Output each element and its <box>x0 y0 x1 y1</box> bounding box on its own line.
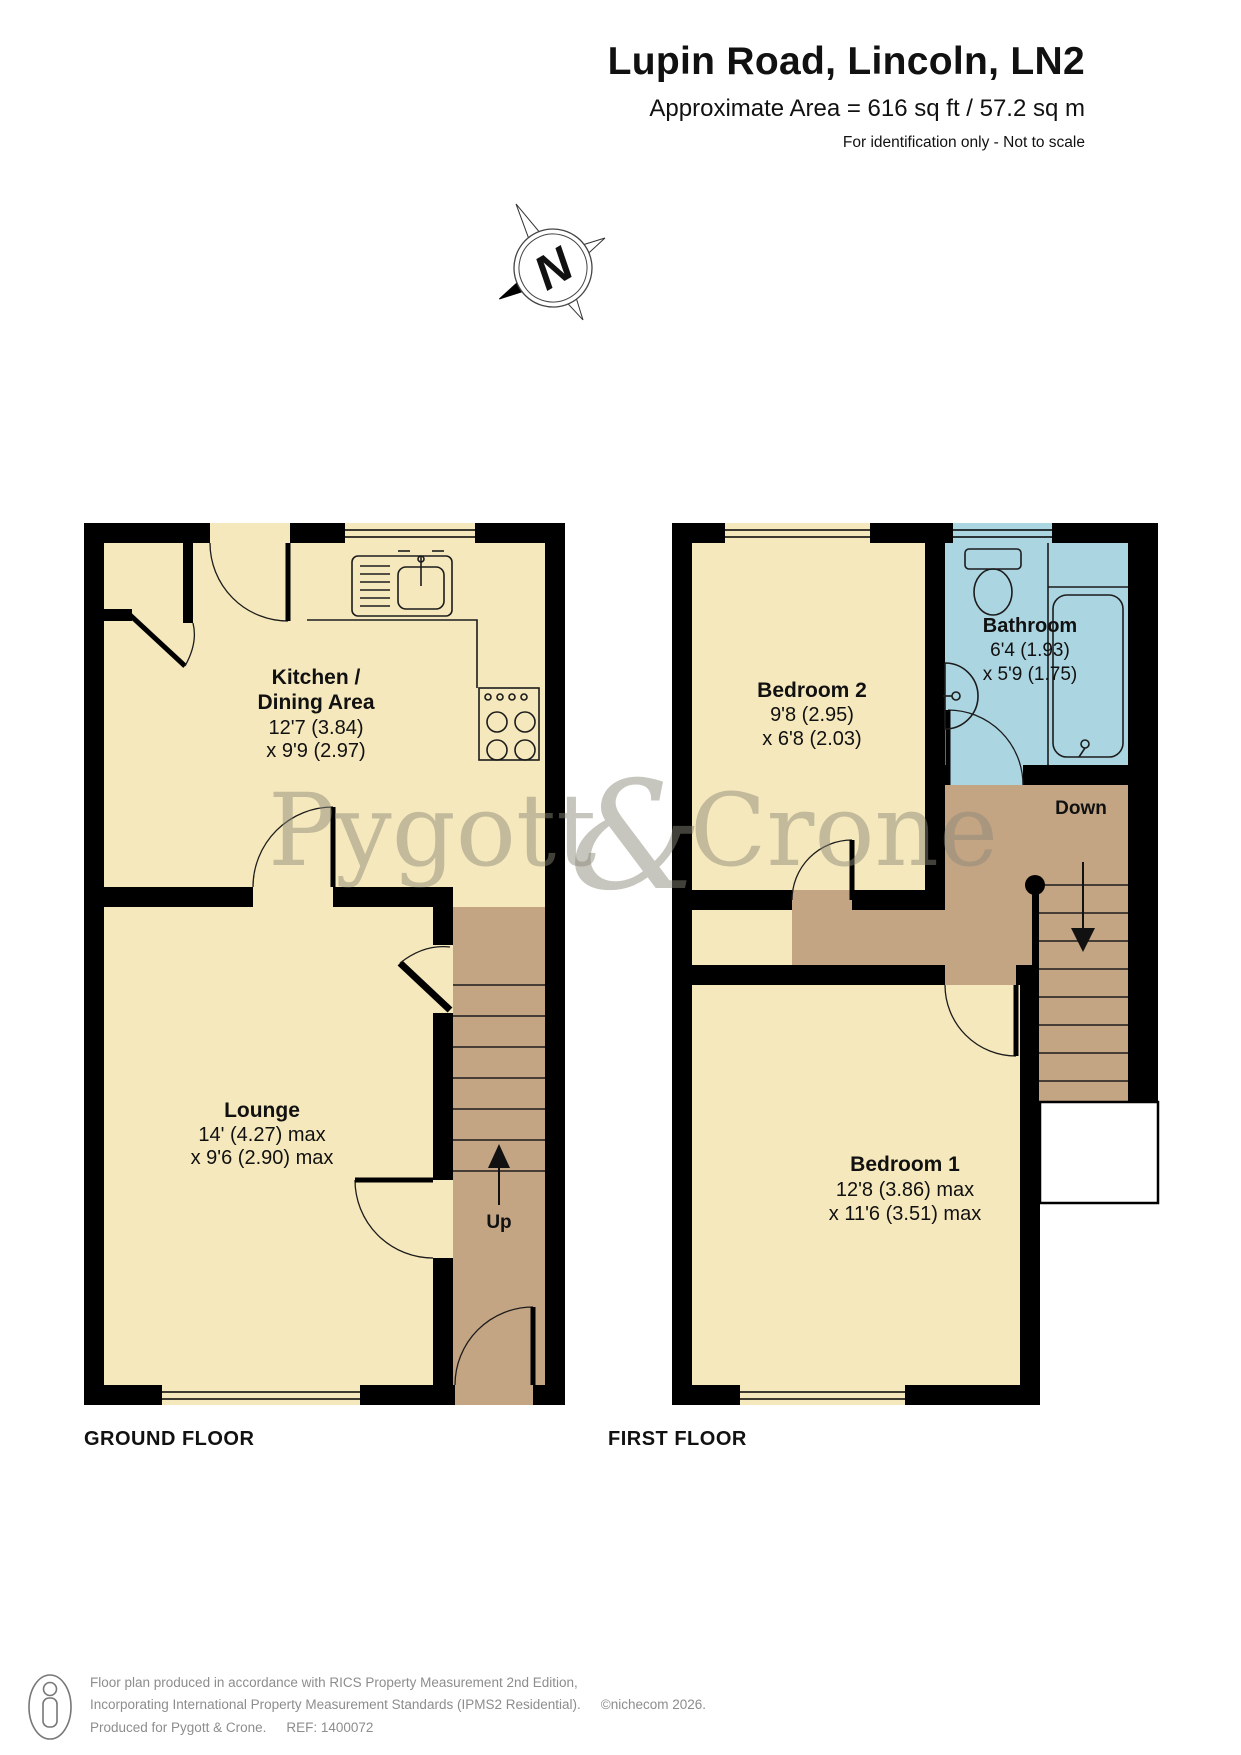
bedroom2-label: Bedroom 2 <box>757 679 867 702</box>
bedroom2-dim2: x 6'8 (2.03) <box>762 728 861 750</box>
lounge-label: Lounge <box>224 1099 300 1122</box>
bedroom1-dim1: 12'8 (3.86) max <box>836 1179 974 1201</box>
bathroom-dim2: x 5'9 (1.75) <box>983 664 1077 685</box>
footer-line3: Produced for Pygott & Crone.REF: 1400072 <box>90 1717 706 1739</box>
bedroom1-window <box>740 1385 905 1405</box>
lounge-dim1: 14' (4.27) max <box>198 1124 325 1146</box>
bathroom-dim1: 6'4 (1.93) <box>990 640 1070 661</box>
bathroom-window <box>953 523 1052 543</box>
watermark-ampersand: & <box>569 750 703 924</box>
ground-floor-title: GROUND FLOOR <box>84 1428 254 1450</box>
compass-rose-icon: N <box>462 174 635 351</box>
stairs-up-label: Up <box>486 1212 511 1233</box>
bedroom1-label: Bedroom 1 <box>850 1153 960 1176</box>
floorplan-drawing: N <box>0 0 1241 1755</box>
lounge-dim2: x 9'6 (2.90) max <box>191 1147 334 1169</box>
kitchen-label-line2: Dining Area <box>257 691 374 714</box>
first-floor-title: FIRST FLOOR <box>608 1428 747 1450</box>
footer-line2: Incorporating International Property Mea… <box>90 1694 706 1716</box>
kitchen-dim1: 12'7 (3.84) <box>269 717 364 739</box>
bathroom-label: Bathroom <box>983 615 1077 637</box>
eaves-cupboard <box>1040 1102 1158 1203</box>
bedroom2-dim1: 9'8 (2.95) <box>770 704 854 726</box>
first-floor-plan <box>672 523 1158 1405</box>
lounge-window <box>162 1385 360 1405</box>
ground-floor-plan <box>84 523 565 1405</box>
floorplan-page: Lupin Road, Lincoln, LN2 Approximate Are… <box>0 0 1241 1755</box>
reference-number: REF: 1400072 <box>286 1720 373 1735</box>
copyright-text: ©nichecom 2026. <box>601 1697 706 1712</box>
watermark-part2: Crone <box>690 772 998 889</box>
kitchen-label-line1: Kitchen / <box>272 666 361 689</box>
footer-line1: Floor plan produced in accordance with R… <box>90 1672 706 1694</box>
footer-text: Floor plan produced in accordance with R… <box>90 1672 706 1739</box>
footer: Floor plan produced in accordance with R… <box>26 1672 706 1742</box>
stairs-down-label: Down <box>1055 798 1107 819</box>
kitchen-window <box>345 523 475 543</box>
bedroom1-dim2: x 11'6 (3.51) max <box>829 1203 981 1225</box>
bedroom2-window <box>725 523 870 543</box>
watermark-part1: Pygott <box>268 772 596 889</box>
person-icon <box>26 1672 74 1742</box>
kitchen-dim2: x 9'9 (2.97) <box>266 740 365 762</box>
